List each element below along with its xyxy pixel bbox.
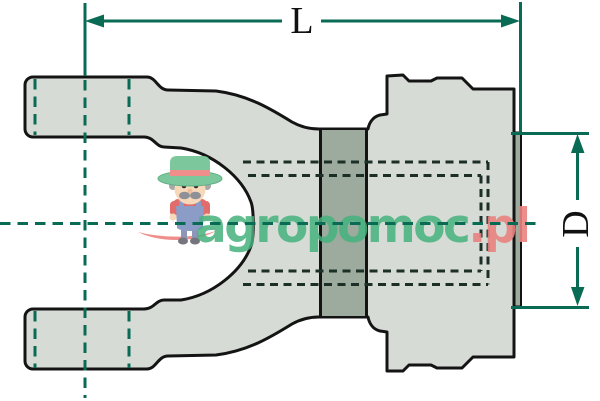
watermark-brand-red: .pl	[468, 199, 528, 254]
mascot-hand	[170, 214, 177, 221]
watermark-brand-green: agropomoc	[195, 199, 468, 254]
mascot-hat-band	[170, 170, 210, 176]
mascot-mustache	[179, 192, 190, 200]
arrowhead-down-icon	[571, 287, 585, 306]
arrowhead-up-icon	[571, 134, 585, 153]
arrowhead-right-icon	[501, 15, 520, 28]
arrowhead-left-icon	[85, 15, 104, 28]
diagram-svg: agropomoc.pl L D	[0, 0, 600, 401]
dimension-d-label: D	[555, 210, 597, 237]
yoke-technical-drawing: agropomoc.pl L D	[0, 0, 600, 401]
watermark-text: agropomoc.pl	[195, 199, 529, 254]
mascot-boot	[178, 238, 188, 245]
dimension-l-label: L	[290, 0, 313, 42]
